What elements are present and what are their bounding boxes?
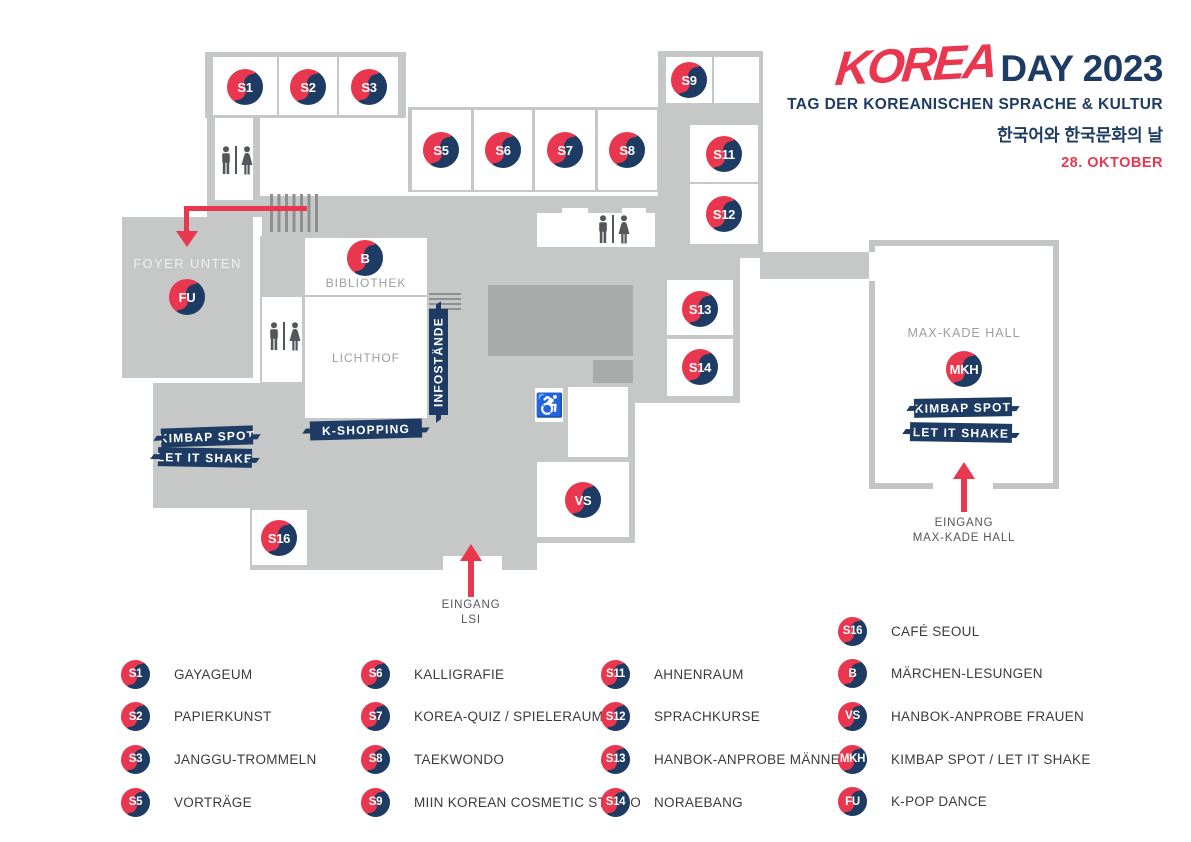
room-badge-label: S5 (433, 143, 448, 158)
eingang-text: EINGANG (935, 517, 994, 529)
building-area (629, 383, 635, 543)
legend-label: SPRACHKURSE (654, 709, 760, 724)
event-header: KOREADAY 2023 TAG DER KOREANISCHEN SPRAC… (787, 38, 1163, 171)
legend-item: FUK-POP DANCE (838, 780, 1091, 823)
floor-plan-poster: ♿ FOYER UNTEN BIBLIOTHEK LICHTHOF MAX-KA… (0, 0, 1191, 842)
logo-day-text: DAY 2023 (1000, 48, 1163, 90)
legend-item: S16CAFÉ SEOUL (838, 610, 1091, 653)
room-badge-label: S2 (300, 80, 315, 95)
stage-block (488, 285, 633, 356)
room-badge-mkh: MKH (946, 351, 982, 387)
arrow-to-foyer (187, 206, 307, 211)
legend-label: TAEKWONDO (414, 752, 504, 767)
escalator-lines-icon (429, 293, 461, 310)
legend-label: CAFÉ SEOUL (891, 624, 980, 639)
room-badge-label: S16 (268, 531, 290, 546)
lichthof-label: LICHTHOF (305, 351, 427, 365)
wc-men-women-icon (268, 322, 302, 354)
room-badge-s1: S1 (227, 69, 263, 105)
eingang-max-kade-label: EINGANG MAX-KADE HALL (869, 516, 1059, 546)
event-subtitle-korean: 한국어와 한국문화의 날 (787, 121, 1163, 146)
foyer-unten-label: FOYER UNTEN (122, 256, 253, 271)
door-gap (562, 208, 588, 214)
legend-label: JANGGU-TROMMELN (174, 752, 317, 767)
room-badge-label: FU (179, 290, 196, 305)
room-badge-s13: S13 (682, 291, 718, 327)
room-badge-s9: S9 (671, 62, 707, 98)
room-badge-label: MKH (950, 362, 979, 377)
room-badge-s16: S16 (261, 520, 297, 556)
room-badge-s3: S3 (351, 69, 387, 105)
entrance-arrow-lsi (468, 559, 474, 597)
wc-men-women-icon (597, 215, 631, 247)
legend-label: KIMBAP SPOT / LET IT SHAKE (891, 752, 1091, 767)
legend-column-3: S11AHNENRAUM S12SPRACHKURSE S13HANBOK-AN… (601, 653, 850, 823)
legend-label: PAPIERKUNST (174, 709, 272, 724)
logo: KOREADAY 2023 (787, 38, 1163, 93)
legend-item: S8TAEKWONDO (361, 738, 641, 781)
stairs-icon (270, 194, 320, 232)
wheelchair-icon: ♿ (535, 391, 563, 419)
room-next-to-s9 (714, 57, 759, 103)
room-badge-s8: S8 (609, 132, 645, 168)
legend-item: S11AHNENRAUM (601, 653, 850, 696)
room-badge-label: S1 (237, 80, 252, 95)
legend-label: NORAEBANG (654, 795, 743, 810)
legend-item: S7KOREA-QUIZ / SPIELERAUM (361, 696, 641, 739)
max-kade-text: MAX-KADE HALL (913, 532, 1015, 544)
legend-badge: B (838, 659, 867, 688)
corridor-to-max-kade (760, 252, 872, 279)
legend-badge: S9 (361, 788, 390, 817)
let-it-shake-label: LET IT SHAKE (158, 447, 252, 468)
room-badge-label: S8 (619, 143, 634, 158)
legend-label: VORTRÄGE (174, 795, 252, 810)
legend-badge: S11 (601, 660, 630, 689)
legend-badge: VS (838, 702, 867, 731)
legend-badge: S8 (361, 745, 390, 774)
legend-item: S14NORAEBANG (601, 781, 850, 824)
legend-label: HANBOK-ANPROBE MÄNNER (654, 752, 850, 767)
legend-item: S9MIIN KOREAN COSMETIC STUDIO (361, 781, 641, 824)
arrow-to-foyer-head (176, 231, 198, 247)
entrance-arrow-max-kade (961, 477, 967, 512)
legend-item: BMÄRCHEN-LESUNGEN (838, 653, 1091, 696)
logo-korea-text: KOREA (833, 34, 997, 97)
wc-men-women-icon (220, 146, 254, 178)
k-shopping-label: K-SHOPPING (310, 419, 422, 441)
room-badge-label: S13 (689, 302, 711, 317)
legend-item: S2PAPIERKUNST (121, 696, 317, 739)
room-badge-s6: S6 (485, 132, 521, 168)
room-badge-label: B (360, 251, 369, 266)
room-badge-b: B (347, 240, 383, 276)
infostaende-label: INFOSTÄNDE (429, 309, 448, 415)
legend-item: S6KALLIGRAFIE (361, 653, 641, 696)
room-middle (568, 387, 628, 457)
legend-item: VSHANBOK-ANPROBE FRAUEN (838, 695, 1091, 738)
legend-badge: S16 (838, 617, 867, 646)
legend-badge: S12 (601, 702, 630, 731)
legend-badge: S14 (601, 788, 630, 817)
legend-item: S5VORTRÄGE (121, 781, 317, 824)
mkh-kimbap-spot-label: KIMBAP SPOT (914, 397, 1012, 418)
mkh-let-it-shake-label: LET IT SHAKE (910, 422, 1012, 443)
event-subtitle: TAG DER KOREANISCHEN SPRACHE & KULTUR (787, 96, 1163, 114)
legend-item: S13HANBOK-ANPROBE MÄNNER (601, 738, 850, 781)
legend-column-2: S6KALLIGRAFIE S7KOREA-QUIZ / SPIELERAUM … (361, 653, 641, 823)
building-area (537, 536, 635, 543)
legend-badge: S7 (361, 702, 390, 731)
max-kade-corridor-opening (869, 252, 876, 281)
room-badge-label: VS (575, 493, 592, 508)
eingang-text: EINGANG (442, 599, 501, 611)
legend-badge: S13 (601, 745, 630, 774)
room-badge-s12: S12 (706, 196, 742, 232)
door-gap (622, 208, 646, 214)
room-badge-s14: S14 (682, 349, 718, 385)
legend-column-1: S1GAYAGEUM S2PAPIERKUNST S3JANGGU-TROMME… (121, 653, 317, 823)
legend-item: S1GAYAGEUM (121, 653, 317, 696)
legend-label: KALLIGRAFIE (414, 667, 504, 682)
legend-label: GAYAGEUM (174, 667, 252, 682)
kimbap-spot-label: KIMBAP SPOT (161, 425, 254, 447)
legend-badge: S2 (121, 702, 150, 731)
room-badge-s2: S2 (290, 69, 326, 105)
room-badge-label: S3 (361, 80, 376, 95)
legend-item: S12SPRACHKURSE (601, 696, 850, 739)
room-badge-label: S9 (681, 73, 696, 88)
room-badge-s11: S11 (706, 136, 742, 172)
eingang-lsi-label: EINGANG LSI (421, 598, 521, 628)
room-wc-middle (537, 213, 655, 247)
legend-label: K-POP DANCE (891, 794, 987, 809)
room-badge-fu: FU (169, 279, 205, 315)
legend-badge: S1 (121, 660, 150, 689)
room-badge-s7: S7 (547, 132, 583, 168)
lsi-text: LSI (461, 614, 481, 626)
legend-badge: FU (838, 787, 867, 816)
legend-badge: S5 (121, 788, 150, 817)
legend-badge: S6 (361, 660, 390, 689)
room-badge-label: S14 (689, 360, 711, 375)
legend-badge: S3 (121, 745, 150, 774)
room-badge-label: S12 (713, 207, 735, 222)
legend-label: HANBOK-ANPROBE FRAUEN (891, 709, 1084, 724)
legend-label: MÄRCHEN-LESUNGEN (891, 666, 1043, 681)
stage-block-small (593, 360, 633, 383)
room-badge-label: S7 (557, 143, 572, 158)
legend-item: MKHKIMBAP SPOT / LET IT SHAKE (838, 738, 1091, 781)
max-kade-hall-label: MAX-KADE HALL (869, 326, 1059, 340)
room-badge-s5: S5 (423, 132, 459, 168)
room-badge-vs: VS (565, 482, 601, 518)
event-date: 28. OKTOBER (787, 155, 1163, 171)
room-badge-label: S6 (495, 143, 510, 158)
room-badge-label: S11 (713, 147, 735, 162)
legend-label: AHNENRAUM (654, 667, 744, 682)
legend-item: S3JANGGU-TROMMELN (121, 738, 317, 781)
arrow-to-foyer (184, 206, 189, 233)
bibliothek-label: BIBLIOTHEK (305, 276, 427, 290)
legend-column-4: S16CAFÉ SEOUL BMÄRCHEN-LESUNGEN VSHANBOK… (838, 610, 1091, 823)
legend-badge: MKH (838, 745, 867, 774)
legend-label: KOREA-QUIZ / SPIELERAUM (414, 709, 603, 724)
